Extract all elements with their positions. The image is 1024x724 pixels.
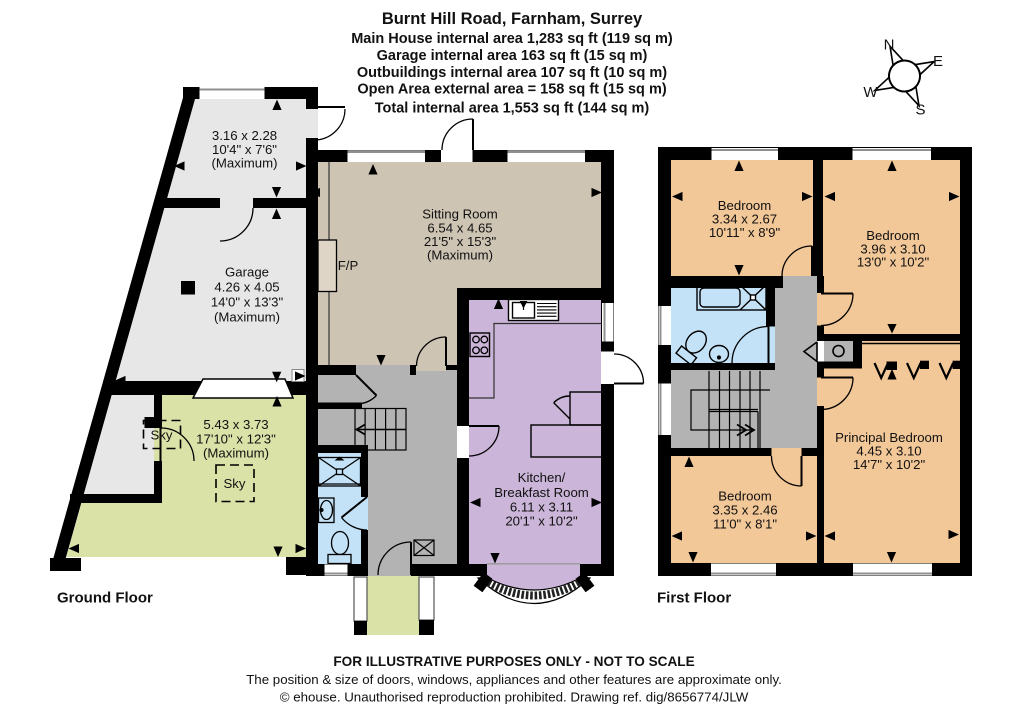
svg-text:N: N: [884, 37, 895, 54]
svg-text:Ground Floor: Ground Floor: [57, 590, 153, 607]
svg-text:The position & size of doors,: The position & size of doors, windows, a…: [246, 672, 782, 687]
svg-text:6.11 x 3.11: 6.11 x 3.11: [510, 500, 573, 515]
svg-text:5.43 x 3.73: 5.43 x 3.73: [203, 417, 268, 432]
svg-text:Sky: Sky: [151, 428, 173, 443]
svg-text:20'1" x 10'2": 20'1" x 10'2": [505, 514, 578, 529]
svg-text:Open Area external area = 158: Open Area external area = 158 sq ft (15 …: [357, 82, 667, 98]
svg-text:E: E: [933, 53, 943, 70]
svg-text:3.16 x 2.28: 3.16 x 2.28: [212, 128, 277, 143]
svg-text:First Floor: First Floor: [657, 590, 731, 607]
svg-text:Garage internal area 163 sq ft: Garage internal area 163 sq ft (15 sq m): [377, 48, 648, 64]
svg-text:3.35 x 2.46: 3.35 x 2.46: [712, 503, 777, 518]
svg-text:S: S: [915, 102, 925, 119]
svg-text:11'0" x 8'1": 11'0" x 8'1": [713, 517, 777, 532]
svg-text:Total internal area 1,553 sq f: Total internal area 1,553 sq ft (144 sq …: [375, 101, 650, 117]
svg-text:W: W: [863, 84, 878, 101]
svg-text:Garage: Garage: [225, 265, 269, 280]
svg-text:(Maximum): (Maximum): [203, 446, 269, 461]
svg-text:10'11" x 8'9": 10'11" x 8'9": [709, 225, 781, 240]
svg-text:Breakfast Room: Breakfast Room: [494, 485, 589, 500]
svg-text:17'10" x 12'3": 17'10" x 12'3": [196, 432, 276, 447]
svg-text:FOR ILLUSTRATIVE PURPOSES ONLY: FOR ILLUSTRATIVE PURPOSES ONLY - NOT TO …: [333, 654, 694, 669]
svg-text:Kitchen/: Kitchen/: [518, 470, 566, 485]
svg-text:Sky: Sky: [224, 476, 246, 491]
svg-text:14'7" x 10'2": 14'7" x 10'2": [853, 457, 926, 472]
svg-text:4.26 x 4.05: 4.26 x 4.05: [214, 280, 279, 295]
svg-text:Outbuildings internal area 107: Outbuildings internal area 107 sq ft (10…: [357, 65, 667, 81]
svg-text:14'0" x 13'3": 14'0" x 13'3": [211, 295, 284, 310]
svg-text:Bedroom: Bedroom: [718, 489, 772, 504]
svg-text:Main House internal area 1,283: Main House internal area 1,283 sq ft (11…: [351, 31, 673, 47]
svg-text:F/P: F/P: [338, 258, 359, 273]
svg-text:© ehouse. Unauthorised reprodu: © ehouse. Unauthorised reproduction proh…: [280, 690, 749, 705]
svg-text:Burnt Hill Road, Farnham, Surr: Burnt Hill Road, Farnham, Surrey: [382, 10, 643, 28]
svg-text:(Maximum): (Maximum): [212, 156, 278, 171]
svg-text:(Maximum): (Maximum): [427, 248, 493, 263]
svg-text:13'0" x 10'2": 13'0" x 10'2": [857, 255, 930, 270]
svg-text:(Maximum): (Maximum): [214, 310, 280, 325]
svg-text:Sitting Room: Sitting Room: [422, 207, 498, 222]
